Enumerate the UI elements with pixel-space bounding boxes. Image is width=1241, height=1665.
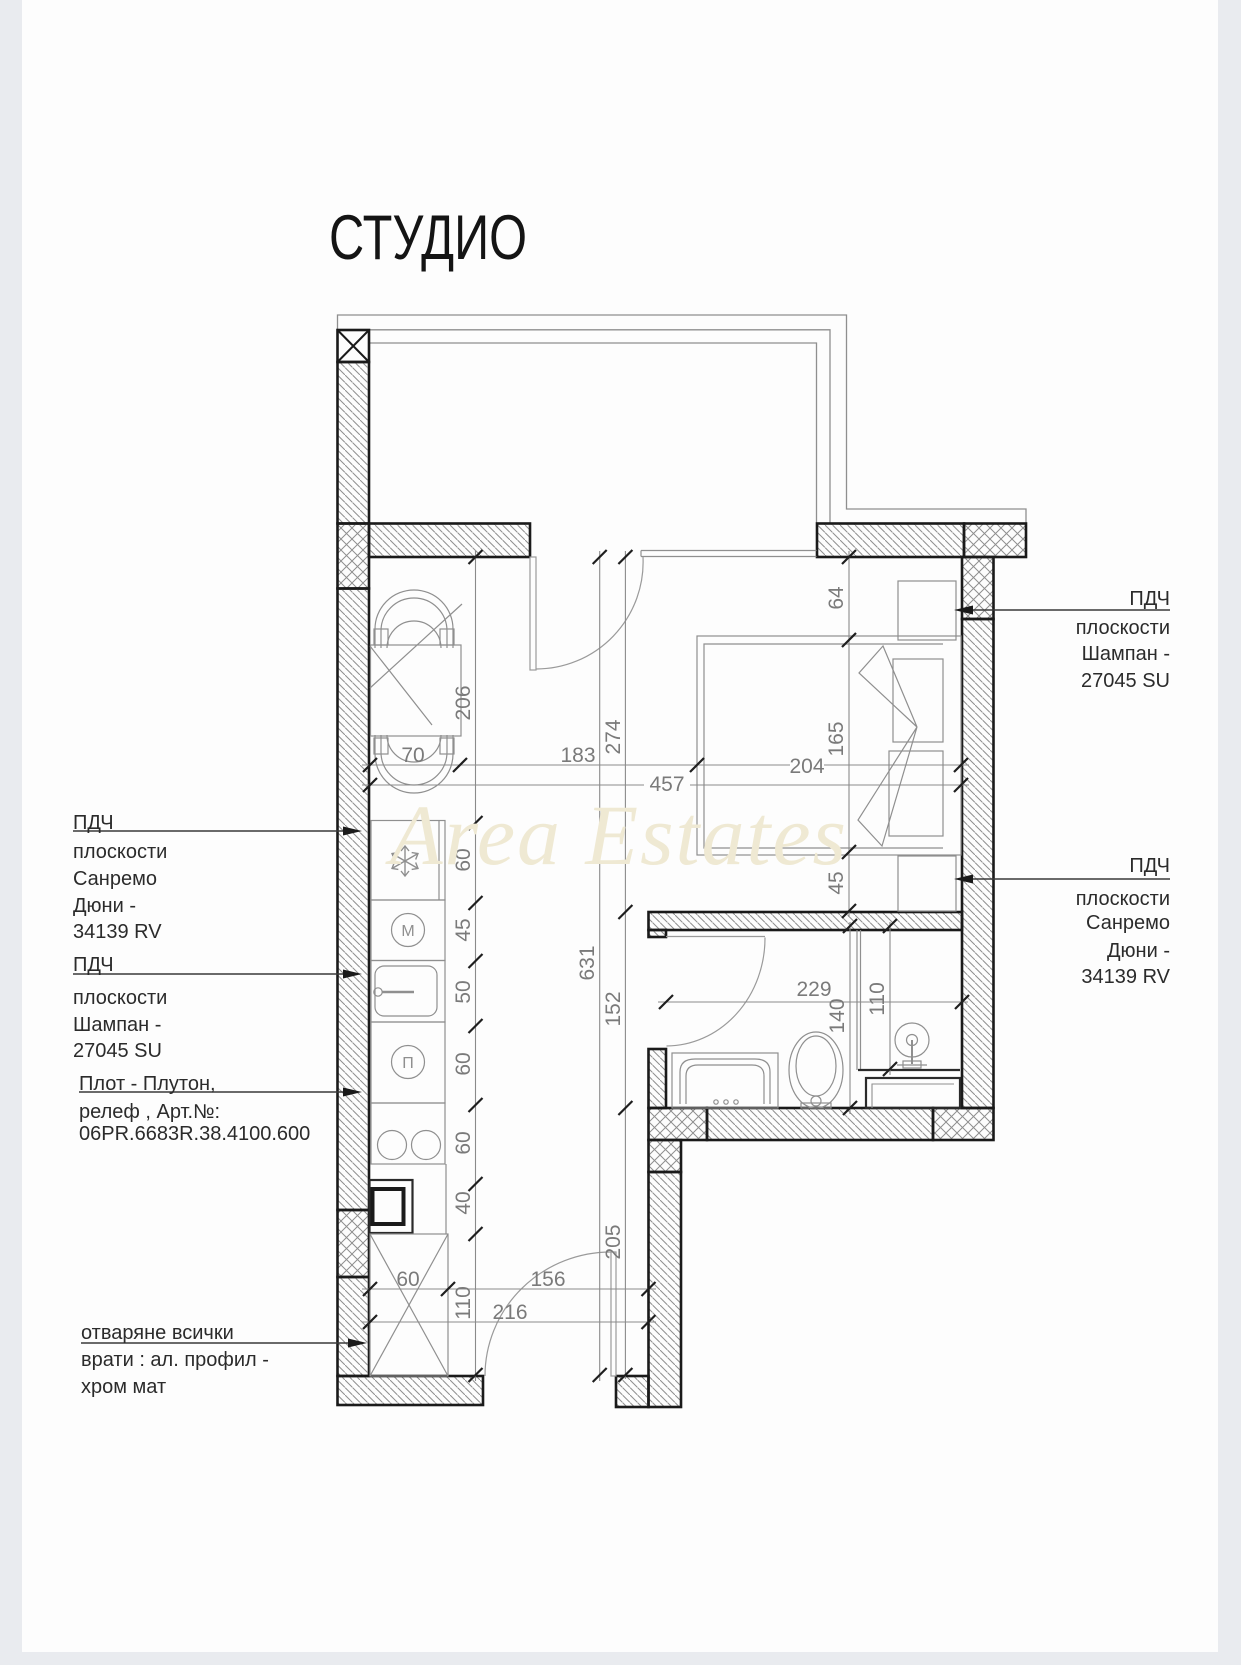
svg-text:229: 229: [796, 978, 831, 1001]
svg-text:ПДЧ: ПДЧ: [1129, 588, 1170, 610]
svg-text:ПДЧ: ПДЧ: [73, 812, 114, 834]
svg-text:Area Estates: Area Estates: [385, 787, 846, 883]
svg-text:631: 631: [576, 945, 599, 980]
svg-text:27045 SU: 27045 SU: [1081, 670, 1170, 692]
svg-text:плоскости: плоскости: [1076, 617, 1170, 639]
svg-text:110: 110: [866, 982, 889, 1015]
svg-text:плоскости: плоскости: [73, 841, 167, 863]
svg-text:110: 110: [452, 1286, 475, 1319]
svg-text:156: 156: [530, 1268, 565, 1291]
svg-text:64: 64: [825, 586, 848, 610]
svg-text:183: 183: [560, 744, 595, 767]
svg-text:204: 204: [789, 755, 824, 778]
svg-text:Дюни -: Дюни -: [1107, 940, 1170, 962]
svg-text:врати : ал. профил -: врати : ал. профил -: [81, 1349, 269, 1371]
svg-text:216: 216: [492, 1301, 527, 1324]
svg-text:плоскости: плоскости: [1076, 888, 1170, 910]
svg-text:Санремо: Санремо: [1086, 912, 1170, 934]
svg-text:Санремо: Санремо: [73, 868, 157, 890]
svg-text:34139 RV: 34139 RV: [73, 921, 162, 943]
svg-text:165: 165: [825, 721, 848, 756]
svg-text:70: 70: [401, 744, 424, 767]
svg-text:206: 206: [452, 685, 475, 720]
svg-text:140: 140: [826, 998, 849, 1033]
svg-text:Шампан -: Шампан -: [1082, 643, 1170, 665]
svg-text:50: 50: [452, 980, 475, 1003]
svg-text:Шампан -: Шампан -: [73, 1014, 161, 1036]
svg-text:ПДЧ: ПДЧ: [1129, 855, 1170, 877]
svg-text:60: 60: [396, 1268, 419, 1291]
svg-text:Дюни -: Дюни -: [73, 895, 136, 917]
svg-text:хром мат: хром мат: [81, 1376, 166, 1398]
svg-text:плоскости: плоскости: [73, 987, 167, 1009]
svg-text:М: М: [401, 923, 414, 940]
svg-text:40: 40: [452, 1191, 475, 1214]
svg-text:34139 RV: 34139 RV: [1081, 966, 1170, 988]
svg-text:60: 60: [452, 1052, 475, 1075]
svg-text:П: П: [402, 1055, 414, 1072]
svg-text:27045 SU: 27045 SU: [73, 1040, 162, 1062]
svg-text:СТУДИО: СТУДИО: [329, 203, 527, 273]
svg-text:152: 152: [602, 991, 625, 1026]
svg-text:60: 60: [452, 1131, 475, 1154]
svg-text:релеф , Арт.№:: релеф , Арт.№:: [79, 1101, 220, 1123]
svg-text:Плот - Плутон,: Плот - Плутон,: [79, 1073, 216, 1095]
svg-text:06PR.6683R.38.4100.600: 06PR.6683R.38.4100.600: [79, 1123, 310, 1145]
svg-text:274: 274: [602, 719, 625, 754]
svg-text:205: 205: [602, 1224, 625, 1259]
svg-text:45: 45: [452, 918, 475, 941]
svg-text:отваряне всички: отваряне всички: [81, 1322, 234, 1344]
svg-text:ПДЧ: ПДЧ: [73, 954, 114, 976]
